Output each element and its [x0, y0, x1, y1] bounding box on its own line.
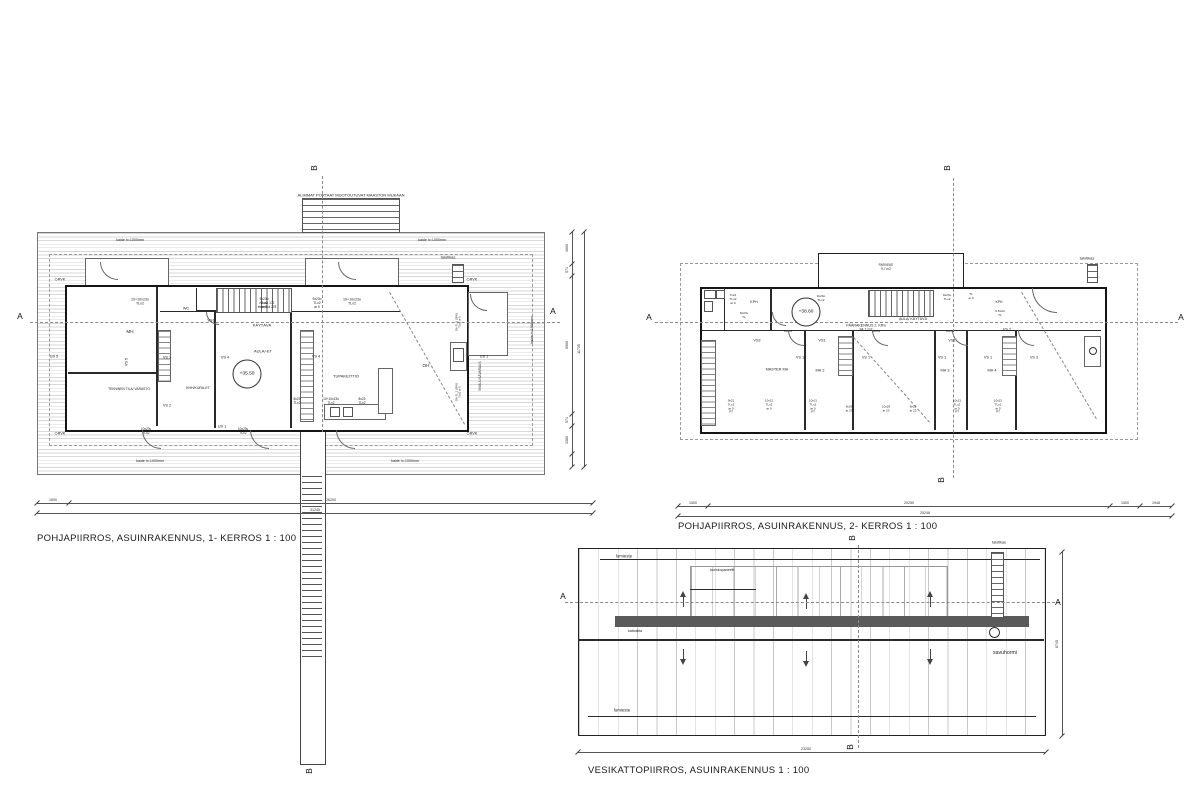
annotation-label: talotikas [992, 541, 1006, 546]
section-marker: A [17, 311, 23, 321]
annotation-label: MH 2 [815, 369, 824, 374]
annotation-label: 8x29 ar 23 [910, 405, 917, 413]
annotation-label: lumieste [614, 707, 630, 713]
annotation-label: MASTER MH [766, 368, 789, 373]
annotation-label: 10x23v TLx2 [141, 427, 151, 435]
annotation-label: US 1 [218, 425, 226, 430]
dimension-tick [570, 464, 576, 470]
annotation-label: WC [183, 307, 189, 312]
dimension-line [1062, 552, 1063, 736]
dimension-line [578, 752, 1046, 753]
annotation-label: 29+7L.1 (3PK) TLx2 ar 0 [456, 313, 463, 331]
annotation-label: 10x23v TLx2 [238, 427, 248, 435]
annotation-label: AULA/-ET [254, 349, 272, 354]
annotation-label: kattosilta [628, 629, 642, 633]
annotation-label: lumieste [616, 553, 632, 559]
dimension-tick [1043, 750, 1049, 756]
annotation-label: VS2 [753, 339, 760, 344]
generated-annotations-layer: 1600262003124516005746900574138011735150… [0, 0, 1200, 800]
annotation-label: ALIMMAT PORTAAT MUOTOUTUVAT MAASTON MUKA… [298, 193, 405, 198]
annotation-label: 10x21 TLx2 ar 0 PT [994, 400, 1002, 415]
annotation-label: kaide h=1000mm [418, 238, 446, 242]
annotation-label: KHH/KURA-ET [186, 386, 210, 390]
level-marker: +35.50 [233, 360, 262, 389]
annotation-label: 9x23v [946, 330, 954, 334]
dimension-value: 574 [565, 267, 569, 273]
annotation-label: 9x23v [784, 330, 792, 334]
dimension-value: 26200 [326, 498, 336, 502]
section-marker: B [936, 477, 946, 483]
annotation-label: VS 1 [163, 356, 171, 361]
annotation-label: 10x21 TLx2 ar 0 [765, 399, 773, 410]
annotation-label: MH 3 [940, 369, 949, 374]
annotation-label: VS 2 [1003, 328, 1011, 333]
section-line [858, 545, 859, 748]
section-marker: A [550, 306, 556, 316]
annotation-label: KPH [996, 300, 1003, 304]
annotation-label: VS 4 [312, 355, 320, 360]
annotation-label: 6.5x24 TL [995, 310, 1004, 318]
section-marker: A [646, 312, 652, 322]
dimension-line [584, 232, 585, 467]
dimension-tick [1060, 733, 1066, 739]
annotation-label: KÄYTÄVÄ [253, 323, 271, 328]
annotation-label: 9x29 ar 23 [846, 405, 853, 413]
annotation-label: ◇RVK [55, 432, 66, 437]
annotation-label: TEKNINEN TILA/ VARASTO [108, 387, 150, 391]
drawing-sheet: POHJAPIIRROS, ASUINRAKENNUS, 1- KERROS 1… [0, 0, 1200, 800]
annotation-label: VS 1 [796, 356, 804, 361]
annotation-label: VS 2 [163, 404, 171, 409]
dimension-value: 1500 [1121, 501, 1129, 505]
dimension-value: 31245 [310, 508, 320, 512]
annotation-label: kaide h=1000mm [391, 459, 419, 463]
annotation-label: US 1 [480, 355, 488, 360]
dimension-value: 11735 [577, 344, 581, 354]
annotation-label: TL ar 0 [968, 293, 973, 301]
annotation-label: aurinkopaneelit [710, 568, 734, 572]
dimension-tick [1169, 504, 1175, 510]
annotation-label: 10+10x23o TLx2 [131, 298, 149, 307]
annotation-label: 9x23o TLx2 [817, 295, 825, 303]
dimension-value: 23250 [801, 747, 811, 751]
dimension-line [678, 516, 1172, 517]
dimension-tick [1169, 514, 1175, 520]
annotation-label: VS1 [818, 339, 825, 344]
annotation-label: PARVEKE 9,7 m2 [879, 263, 894, 271]
dimension-line [37, 503, 593, 504]
annotation-label: ◇RVK [55, 278, 66, 283]
annotation-label: MH 4 [987, 369, 996, 374]
annotation-label: kaide h=1000mm [530, 316, 534, 344]
annotation-label: VS 1 [984, 356, 992, 361]
section-line [655, 322, 1178, 323]
level-marker: +38.60 [792, 298, 821, 327]
dimension-tick [590, 501, 596, 507]
annotation-label: 10+10x23o TLx2 [323, 397, 339, 405]
annotation-label: VS 1 [862, 356, 870, 361]
annotation-label: 9x23v [872, 330, 880, 334]
section-marker: A [1055, 597, 1061, 607]
dimension-line [678, 506, 1172, 507]
dimension-value: 1600 [49, 498, 57, 502]
dimension-line [572, 232, 573, 467]
annotation-label: US 5 [50, 355, 58, 360]
section-marker: B [942, 165, 952, 171]
dimension-value: 8745 [1055, 640, 1059, 648]
annotation-label: 29+7L.1 (3PK) TLx2 ar 0 [456, 383, 463, 401]
annotation-label: talotikas [441, 255, 456, 260]
annotation-label: kaide h=1000mm [116, 238, 144, 242]
annotation-label: VS 4 [221, 356, 229, 361]
section-marker: A [1178, 312, 1184, 322]
annotation-label: kaide h=1000mm [136, 459, 164, 463]
annotation-label: ◇RVK [467, 432, 478, 437]
annotation-label: INVA-/LISÄVARAUS [478, 362, 482, 391]
dimension-value: 20250 [904, 501, 914, 505]
annotation-label: 8x23 TLx2 [358, 397, 365, 405]
annotation-label: ◇RVK [467, 278, 478, 283]
dimension-value: 6900 [565, 341, 569, 349]
annotation-label: 10x21 TLx2 ar 0 PT [953, 400, 961, 415]
annotation-label: VS 3 [1030, 356, 1038, 361]
dimension-value: 1500 [689, 501, 697, 505]
dimension-value: 1600 [565, 244, 569, 252]
section-line [30, 322, 560, 323]
annotation-label: nousu 172 etenemä 278 [258, 301, 277, 309]
dimension-tick [590, 511, 596, 517]
annotation-label: AULA/ KÄYTÄVÄ [899, 317, 927, 321]
annotation-label: VS 5 [125, 358, 130, 366]
section-line [565, 602, 1060, 603]
annotation-label: KPH [750, 300, 757, 304]
annotation-label: savuhormi [993, 650, 1017, 657]
section-marker: B [309, 165, 319, 171]
annotation-label: VS1 [207, 319, 214, 324]
annotation-label: 7x21 TLx2 ar 0 [730, 294, 737, 306]
annotation-label: 9x23o TLx2 ar 0 [313, 297, 322, 309]
annotation-label: 9x21 TLx2 ar 0 PT [728, 400, 735, 415]
section-marker: A [560, 591, 566, 601]
annotation-label: talotikas [1080, 256, 1095, 261]
annotation-label: MH [126, 329, 133, 335]
section-marker: B [304, 768, 314, 774]
annotation-label: VS 1 [938, 356, 946, 361]
annotation-label: 8x24v TL [740, 312, 748, 320]
dimension-tick [582, 464, 588, 470]
annotation-label: 10+10x23o TLx2 [343, 298, 361, 307]
annotation-label: 8x23 TLx2 [293, 397, 300, 405]
dimension-line [37, 513, 593, 514]
dimension-value: 25248 [920, 511, 930, 515]
section-marker: B [845, 744, 855, 750]
section-line [953, 178, 954, 478]
annotation-label: VS1 [948, 339, 955, 344]
section-line [322, 176, 323, 432]
annotation-label: 10x29 ar 23 [882, 405, 890, 413]
dimension-value: 1380 [565, 436, 569, 444]
annotation-label: 9x23v TLx2 [943, 294, 951, 302]
dimension-value: 1948 [1152, 501, 1160, 505]
dimension-value: 574 [565, 417, 569, 423]
annotation-label: TUPAKEITTIÖ [333, 374, 359, 379]
section-marker: B [847, 535, 857, 541]
annotation-label: OH [423, 363, 430, 369]
annotation-label: 10x21 TLx2 ar 0 PT [809, 400, 817, 415]
